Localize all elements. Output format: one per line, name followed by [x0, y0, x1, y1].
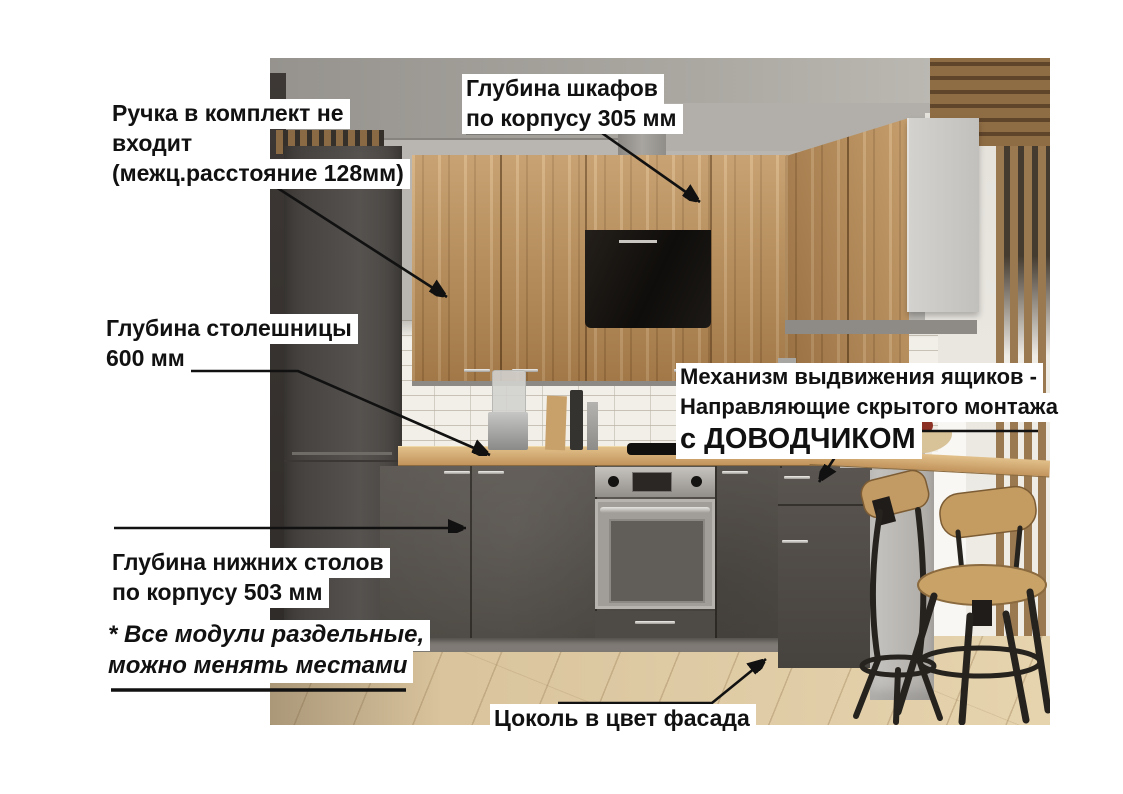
plinth — [382, 638, 840, 652]
label-base-depth: Глубина нижних столов по корпусу 503 мм — [108, 548, 390, 608]
corner-upper-cabinet — [785, 118, 909, 392]
range-hood — [585, 230, 711, 328]
oven-knob — [608, 476, 619, 487]
oven-door — [595, 499, 715, 609]
label-line-emphasis: с ДОВОДЧИКОМ — [676, 422, 922, 459]
bar-stools — [822, 420, 1050, 725]
cabinet-handle — [464, 369, 490, 372]
pepper-grinder — [587, 402, 598, 450]
label-line: Глубина столешницы — [102, 314, 358, 344]
label-plinth-note: Цоколь в цвет фасада — [490, 704, 756, 734]
blender-jar — [492, 370, 526, 418]
base-door-seam — [715, 466, 717, 638]
cabinet-handle — [635, 621, 675, 624]
label-handle-note: Ручка в комплект не входит (межц.расстоя… — [108, 99, 410, 189]
oven-glass — [609, 519, 705, 603]
oven-display — [632, 472, 672, 492]
label-line: по корпусу 305 мм — [462, 104, 683, 134]
tall-cabinet-seam — [284, 460, 400, 462]
corner-cabinet-seam — [847, 118, 849, 392]
label-line: входит — [108, 129, 198, 159]
oven-lower-drawer — [595, 611, 715, 638]
oven-knob — [691, 476, 702, 487]
label-line: 600 мм — [102, 344, 191, 374]
cabinet-handle — [722, 471, 748, 474]
label-line: Ручка в комплект не — [108, 99, 350, 129]
label-upper-depth: Глубина шкафов по корпусу 305 мм — [462, 74, 683, 134]
cutting-board — [545, 396, 567, 451]
cabinet-handle — [444, 471, 470, 474]
upper-end-panel — [907, 118, 979, 312]
label-line: Глубина шкафов — [462, 74, 664, 104]
oven-control-panel — [595, 467, 715, 497]
upper-door-seam — [500, 155, 502, 381]
label-line: Механизм выдвижения ящиков - — [676, 363, 1043, 393]
label-drawer-mechanism: Механизм выдвижения ящиков - Направляющи… — [676, 363, 1064, 459]
tall-cabinet-handle — [292, 452, 392, 455]
bottle — [570, 390, 583, 450]
blender-base — [488, 412, 528, 450]
label-modules-note: * Все модули раздельные, можно менять ме… — [104, 620, 430, 683]
label-countertop-depth: Глубина столешницы 600 мм — [102, 314, 358, 374]
label-line: по корпусу 503 мм — [108, 578, 329, 608]
base-door-seam — [470, 466, 472, 638]
label-line: (межц.расстояние 128мм) — [108, 159, 410, 189]
oven-handle — [600, 507, 710, 513]
label-line: можно менять местами — [104, 651, 413, 682]
label-line: Цоколь в цвет фасада — [490, 704, 756, 734]
label-line: * Все модули раздельные, — [104, 620, 430, 651]
cabinet-handle — [478, 471, 504, 474]
under-cabinet-band — [785, 320, 977, 334]
drawer-handle — [782, 540, 808, 543]
hood-handle — [619, 240, 657, 243]
label-line: Глубина нижних столов — [108, 548, 390, 578]
product-annotation-image: Ручка в комплект не входит (межц.расстоя… — [0, 0, 1123, 794]
label-line: Направляющие скрытого монтажа — [676, 393, 1064, 423]
drawer-handle — [784, 476, 810, 479]
